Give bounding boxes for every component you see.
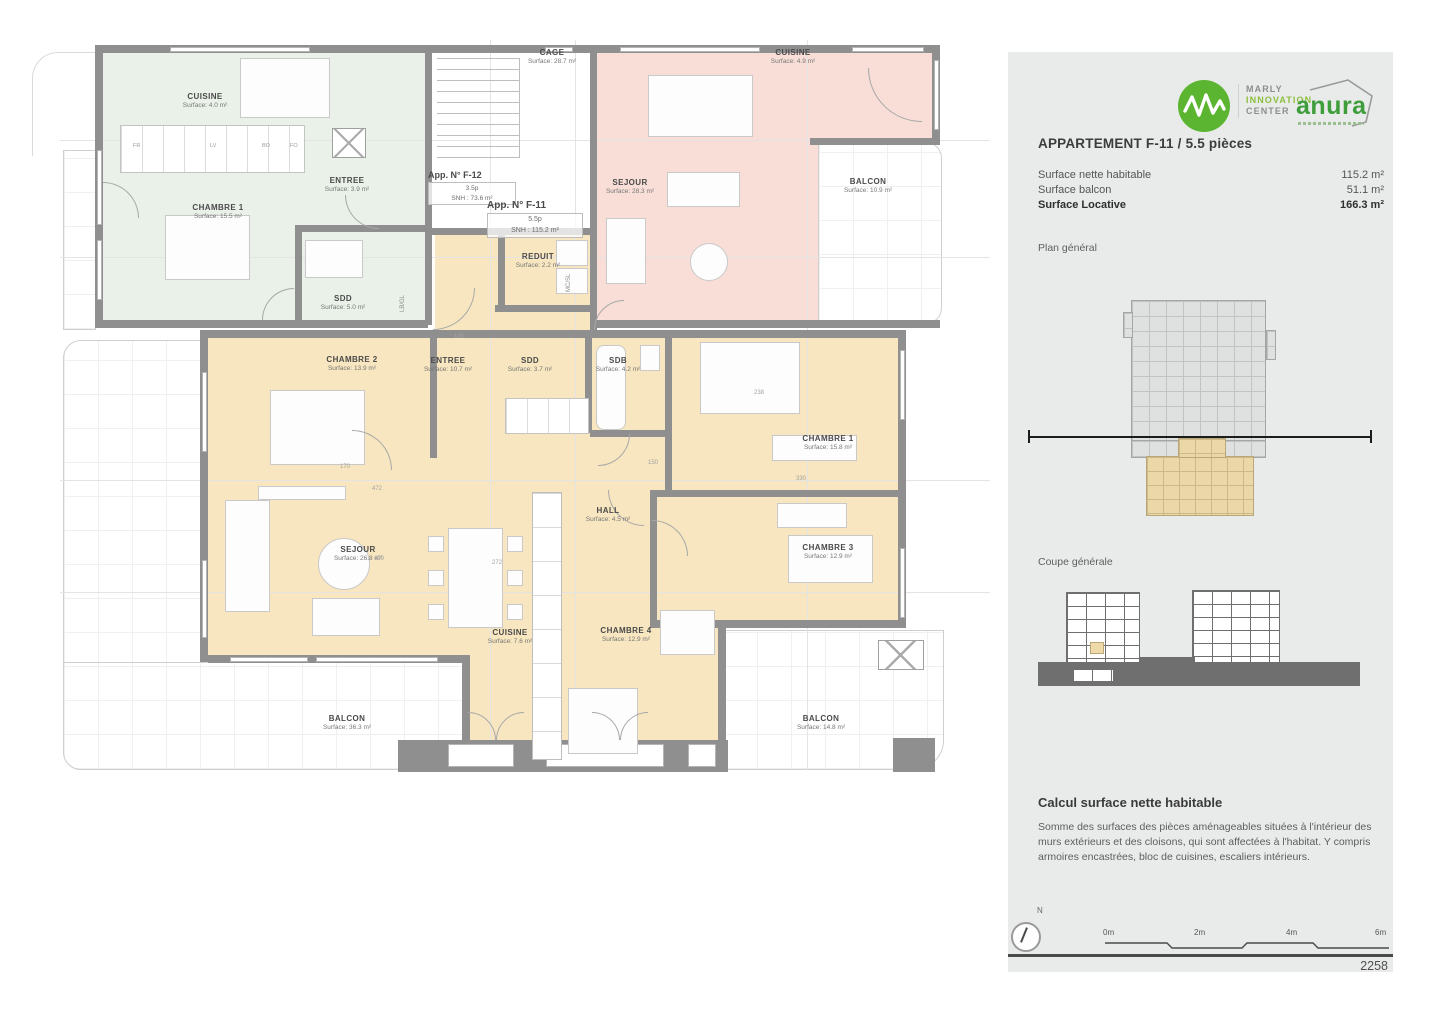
room-surface: Surface: 10.9 m² bbox=[844, 187, 892, 194]
bed bbox=[700, 342, 800, 414]
room-label: SDDSurface: 5.0 m² bbox=[321, 294, 365, 311]
room-name: CUISINE bbox=[488, 628, 532, 637]
shaft-icon bbox=[332, 128, 366, 158]
room-name: REDUIT bbox=[516, 252, 560, 261]
tech-label: MC/SL bbox=[566, 274, 572, 292]
shaft-icon bbox=[878, 640, 924, 670]
wall-segment bbox=[597, 320, 940, 328]
floor-plan: CUISINESurface: 4.0 m² CHAMBRE 1Surface:… bbox=[0, 0, 1008, 1019]
sideboard bbox=[258, 486, 346, 500]
apartment-title: APPARTEMENT F-11 / 5.5 pièces bbox=[1038, 136, 1252, 151]
room-name: SDD bbox=[508, 356, 552, 365]
room-surface: Surface: 7.6 m² bbox=[488, 638, 532, 645]
room-name: CHAMBRE 1 bbox=[802, 434, 853, 443]
calc-body: Somme des surfaces des pièces aménageabl… bbox=[1038, 820, 1386, 866]
room-label: HALLSurface: 4.5 m² bbox=[586, 506, 630, 523]
window bbox=[852, 47, 924, 52]
window bbox=[170, 47, 310, 52]
room-name: CUISINE bbox=[183, 92, 227, 101]
apartment-label-f12: App. N° F-12 bbox=[428, 170, 482, 180]
sofa bbox=[225, 500, 270, 612]
room-name: HALL bbox=[586, 506, 630, 515]
window bbox=[934, 60, 939, 130]
room-surface: Surface: 2.2 m² bbox=[516, 262, 560, 269]
chair bbox=[507, 604, 523, 620]
room-surface: Surface: 5.0 m² bbox=[321, 304, 365, 311]
wardrobe bbox=[505, 398, 589, 434]
section-building-right bbox=[1192, 590, 1280, 664]
dimension-text: 238 bbox=[754, 390, 764, 396]
surface-label: Surface Locative bbox=[1038, 199, 1126, 211]
room-name: BALCON bbox=[797, 714, 845, 723]
surface-row: Surface balcon 51.1 m² bbox=[1038, 184, 1384, 196]
bed bbox=[270, 390, 365, 465]
sheet-number: 2258 bbox=[1330, 959, 1388, 973]
toilet bbox=[640, 345, 660, 371]
room-label: CHAMBRE 2Surface: 13.9 m² bbox=[326, 355, 377, 372]
scale-tick-label: 2m bbox=[1194, 928, 1205, 937]
section-cut-tick bbox=[1028, 430, 1030, 443]
room-label: CUISINESurface: 7.6 m² bbox=[488, 628, 532, 645]
room-surface: Surface: 36.3 m² bbox=[323, 724, 371, 731]
room-surface: Surface: 10.7 m² bbox=[424, 366, 472, 373]
room-label: ENTREESurface: 3.9 m² bbox=[325, 176, 369, 193]
room-name: ENTREE bbox=[325, 176, 369, 185]
kitchen-column bbox=[532, 492, 562, 760]
surface-label: Surface balcon bbox=[1038, 184, 1111, 196]
room-label: BALCONSurface: 14.8 m² bbox=[797, 714, 845, 731]
appliance-label: FR bbox=[133, 143, 140, 149]
balcony-pink bbox=[818, 142, 942, 324]
marly-logo-divider bbox=[1238, 84, 1239, 118]
apartment-snh: SNH : 115.2 m² bbox=[511, 227, 559, 234]
room-name: SEJOUR bbox=[334, 545, 382, 554]
room-label: SEJOURSurface: 28.3 m² bbox=[606, 178, 654, 195]
dining-table bbox=[448, 528, 503, 628]
room-surface: Surface: 13.9 m² bbox=[326, 365, 377, 372]
wall-segment bbox=[295, 225, 430, 232]
room-name: CHAMBRE 2 bbox=[326, 355, 377, 364]
sofa bbox=[667, 172, 740, 207]
room-label: CHAMBRE 1Surface: 15.5 m² bbox=[192, 203, 243, 220]
room-label: CHAMBRE 4Surface: 12.9 m² bbox=[600, 626, 651, 643]
dimension-text: 272 bbox=[492, 560, 502, 566]
room-surface: Surface: 4.5 m² bbox=[586, 516, 630, 523]
wall-segment bbox=[295, 225, 302, 328]
room-name: CHAMBRE 3 bbox=[802, 543, 853, 552]
window bbox=[202, 560, 207, 638]
site-plan-wing bbox=[1266, 330, 1276, 360]
room-surface: Surface: 4.0 m² bbox=[183, 102, 227, 109]
site-plan-highlight-f11-upper bbox=[1178, 438, 1226, 458]
dining-table bbox=[648, 75, 753, 137]
room-label: BALCONSurface: 36.3 m² bbox=[323, 714, 371, 731]
scale-bar bbox=[1103, 938, 1391, 952]
dimension-text: 150 bbox=[648, 460, 658, 466]
room-surface: Surface: 4.2 m² bbox=[596, 366, 640, 373]
room-surface: Surface: 12.9 m² bbox=[600, 636, 651, 643]
footer-rule bbox=[1008, 954, 1393, 957]
window bbox=[900, 350, 905, 420]
room-name: CHAMBRE 1 bbox=[192, 203, 243, 212]
facade-pier bbox=[893, 738, 935, 772]
room-surface: Surface: 3.9 m² bbox=[325, 186, 369, 193]
room-surface: Surface: 15.5 m² bbox=[192, 213, 243, 220]
window bbox=[97, 150, 102, 225]
room-name: BALCON bbox=[844, 177, 892, 186]
staircase bbox=[437, 58, 520, 158]
shelf bbox=[777, 503, 847, 528]
appliance-label: FO bbox=[290, 143, 298, 149]
wardrobe bbox=[660, 610, 715, 655]
appliance-label: LV bbox=[210, 143, 216, 149]
wall-segment bbox=[495, 305, 595, 312]
room-name: SDD bbox=[321, 294, 365, 303]
compass-north-label: N bbox=[1037, 906, 1043, 915]
room-name: CAGE bbox=[528, 48, 576, 57]
room-label: REDUITSurface: 2.2 m² bbox=[516, 252, 560, 269]
washer-dryer bbox=[556, 240, 588, 266]
marly-line1: MARLY bbox=[1246, 84, 1283, 94]
window bbox=[97, 240, 102, 300]
room-surface: Surface: 15.8 m² bbox=[802, 444, 853, 451]
window bbox=[230, 657, 308, 662]
section-building-left bbox=[1066, 592, 1140, 670]
section-basement bbox=[1072, 668, 1114, 682]
washer-dryer bbox=[556, 268, 588, 294]
marly-logo-icon bbox=[1178, 80, 1230, 132]
wall-segment bbox=[650, 490, 657, 628]
room-label: ENTREESurface: 10.7 m² bbox=[424, 356, 472, 373]
armchair bbox=[606, 218, 646, 284]
room-label: CHAMBRE 1Surface: 15.8 m² bbox=[802, 434, 853, 451]
apartment-box-f11: 5.5p SNH : 115.2 m² bbox=[487, 213, 583, 238]
wall-segment bbox=[498, 233, 505, 308]
site-plan-wing bbox=[1123, 312, 1133, 338]
site-plan-highlight-f11 bbox=[1146, 456, 1254, 516]
surface-row-total: Surface Locative 166.3 m² bbox=[1038, 199, 1384, 211]
appliance-label: BO bbox=[262, 143, 270, 149]
wall-segment bbox=[95, 320, 428, 328]
wall-segment bbox=[810, 138, 940, 145]
chair bbox=[507, 536, 523, 552]
bath-fixture bbox=[305, 240, 363, 278]
window bbox=[900, 548, 905, 618]
wave-icon bbox=[1182, 89, 1226, 123]
section-slab bbox=[1140, 657, 1195, 663]
chair bbox=[428, 604, 444, 620]
chair bbox=[507, 570, 523, 586]
plan-general-label: Plan général bbox=[1038, 242, 1097, 254]
surface-value: 166.3 m² bbox=[1340, 199, 1384, 211]
anura-logo-text: anura bbox=[1296, 92, 1367, 121]
room-name: SDB bbox=[596, 356, 640, 365]
room-surface: Surface: 12.9 m² bbox=[802, 553, 853, 560]
balcony-green-left bbox=[63, 150, 96, 330]
dimension-text: 472 bbox=[372, 486, 382, 492]
apartment-label-f11: App. N° F-11 bbox=[487, 200, 546, 211]
window bbox=[448, 744, 514, 767]
window bbox=[202, 372, 207, 452]
wall-segment bbox=[650, 490, 906, 497]
coffee-table bbox=[312, 598, 380, 636]
room-name: CUISINE bbox=[771, 48, 815, 57]
chair bbox=[428, 570, 444, 586]
dimension-text: 170 bbox=[340, 464, 350, 470]
round-table bbox=[690, 243, 728, 281]
room-name: SEJOUR bbox=[606, 178, 654, 187]
room-label: CUISINESurface: 4.9 m² bbox=[771, 48, 815, 65]
wall-segment bbox=[590, 45, 597, 333]
window bbox=[620, 47, 760, 52]
surface-label: Surface nette habitable bbox=[1038, 169, 1151, 181]
marly-line3: CENTER bbox=[1246, 106, 1290, 116]
surface-value: 115.2 m² bbox=[1341, 169, 1384, 181]
dining-table bbox=[240, 58, 330, 118]
room-label: CUISINESurface: 4.0 m² bbox=[183, 92, 227, 109]
dimension-text: 130 bbox=[454, 334, 464, 340]
window bbox=[316, 657, 438, 662]
wall-segment bbox=[665, 330, 672, 490]
apartment-pieces: 5.5p bbox=[528, 216, 542, 223]
dimension-line bbox=[807, 40, 808, 770]
room-name: BALCON bbox=[323, 714, 371, 723]
window bbox=[688, 744, 716, 767]
kitchen-counter bbox=[120, 125, 305, 173]
room-name: CHAMBRE 4 bbox=[600, 626, 651, 635]
plan-sheet: { "plan": { "rooms": [ {"name":"CUISINE"… bbox=[0, 0, 1440, 1019]
room-label: SDBSurface: 4.2 m² bbox=[596, 356, 640, 373]
bed bbox=[165, 215, 250, 280]
wall-segment bbox=[200, 330, 906, 338]
room-surface: Surface: 4.9 m² bbox=[771, 58, 815, 65]
coupe-label: Coupe générale bbox=[1038, 556, 1113, 568]
scale-tick-label: 4m bbox=[1286, 928, 1297, 937]
tech-label: LB/GL bbox=[400, 295, 406, 312]
chair bbox=[428, 536, 444, 552]
section-cut-line bbox=[1028, 436, 1372, 438]
surface-value: 51.1 m² bbox=[1347, 184, 1384, 196]
room-surface: Surface: 3.7 m² bbox=[508, 366, 552, 373]
dimension-text: 479 bbox=[374, 556, 384, 562]
room-label: BALCONSurface: 10.9 m² bbox=[844, 177, 892, 194]
anura-tagline bbox=[1298, 122, 1364, 125]
section-highlight-cell bbox=[1090, 642, 1104, 654]
room-label: CAGESurface: 28.7 m² bbox=[528, 48, 576, 65]
dimension-text: 330 bbox=[796, 476, 806, 482]
room-label: CHAMBRE 3Surface: 12.9 m² bbox=[802, 543, 853, 560]
calc-title: Calcul surface nette habitable bbox=[1038, 795, 1222, 810]
section-cut-tick bbox=[1370, 430, 1372, 443]
scale-tick-label: 0m bbox=[1103, 928, 1114, 937]
apartment-pieces: 3.5p bbox=[466, 185, 479, 192]
room-name: ENTREE bbox=[424, 356, 472, 365]
room-surface: Surface: 14.8 m² bbox=[797, 724, 845, 731]
site-plan-building bbox=[1131, 300, 1266, 442]
room-label: SDDSurface: 3.7 m² bbox=[508, 356, 552, 373]
room-surface: Surface: 28.3 m² bbox=[606, 188, 654, 195]
scale-tick-label: 6m bbox=[1375, 928, 1386, 937]
surface-row: Surface nette habitable 115.2 m² bbox=[1038, 169, 1384, 181]
room-surface: Surface: 28.7 m² bbox=[528, 58, 576, 65]
